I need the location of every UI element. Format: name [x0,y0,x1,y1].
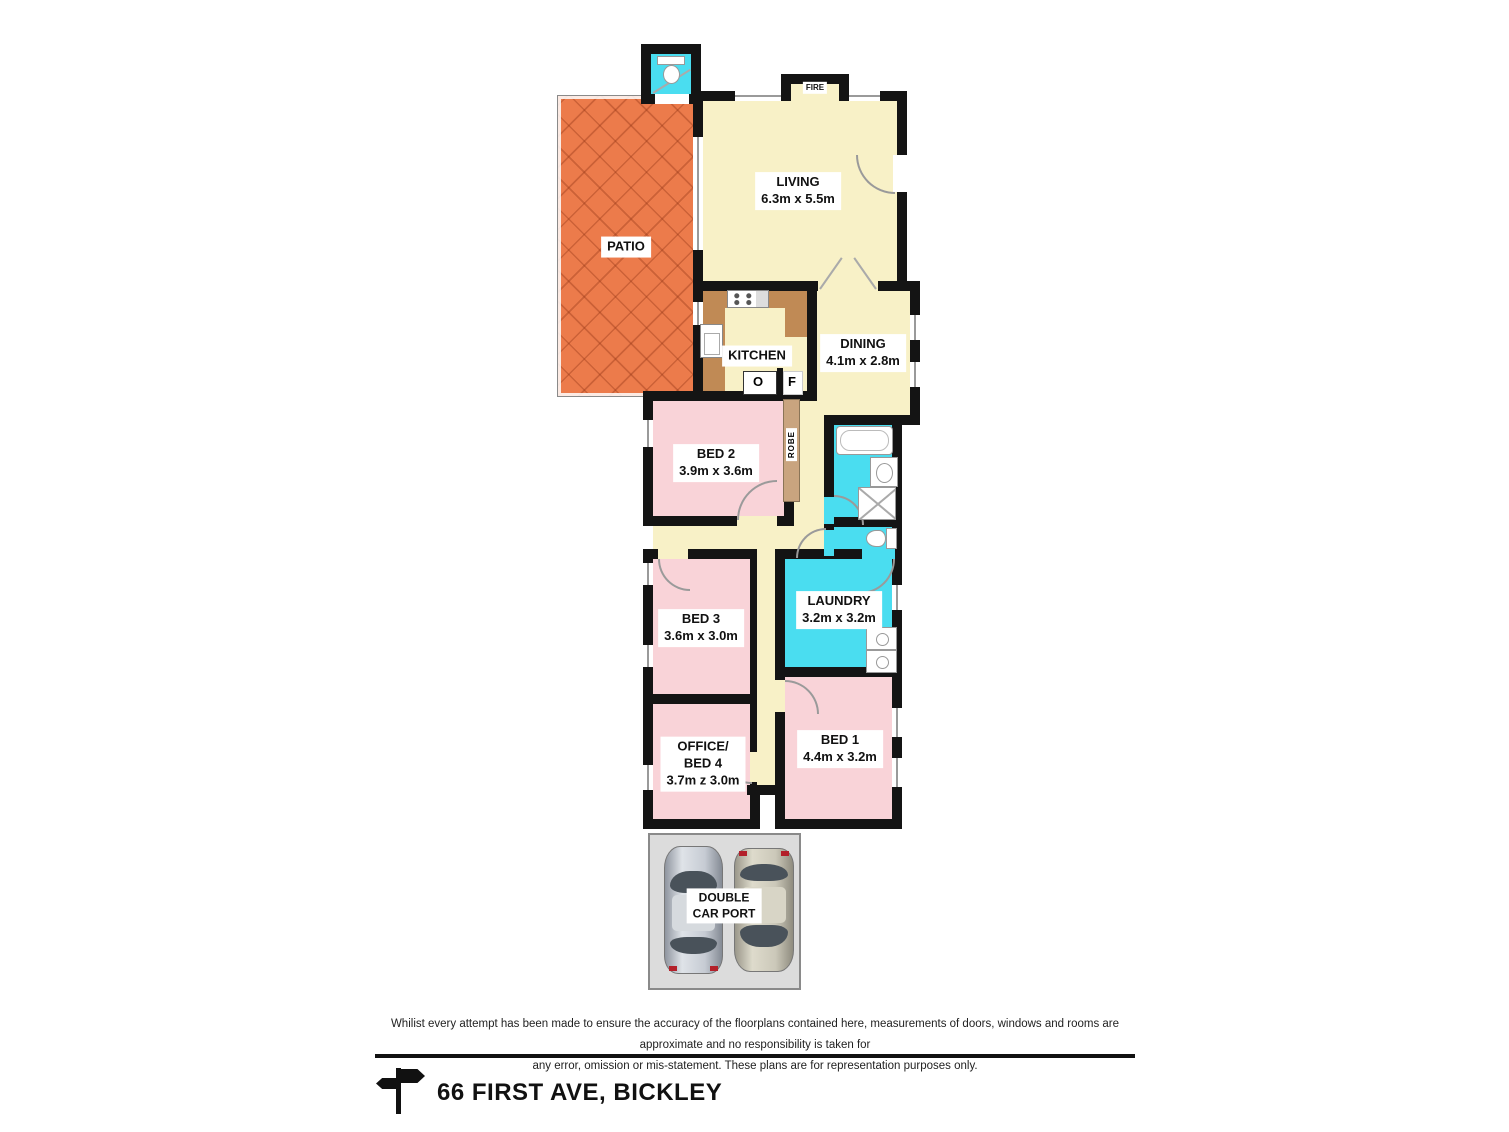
living-door-gap [893,155,907,192]
disclaimer-line2: any error, omission or mis-statement. Th… [375,1056,1135,1077]
laundry-appliance-2-drum [876,656,889,669]
office-label-line2: BED 4 [667,756,740,773]
fire-label-text: FIRE [806,83,824,93]
wc-top-cistern [657,56,685,65]
kitchen-sink-icon [700,324,723,358]
kitchen-wall-stub [777,368,783,395]
stove-icon [727,290,769,308]
car-left-taillight-l [669,966,677,971]
laundry-label-dims: 3.2m x 3.2m [802,610,876,627]
laundry-label: LAUNDRY 3.2m x 3.2m [796,591,882,629]
office-window [643,765,653,790]
car-right-windshield [740,925,788,947]
bed3-label: BED 3 3.6m x 3.0m [658,609,744,647]
laundry-label-name: LAUNDRY [802,593,876,610]
car-right-rear-window [740,864,788,881]
car-right-taillight-l [739,851,747,856]
footer-divider [375,1054,1135,1058]
bed1-label-dims: 4.4m x 3.2m [803,749,877,766]
bed1-label: BED 1 4.4m x 3.2m [797,730,883,768]
car-left-rear-window [670,937,717,954]
carport-label-line2: CAR PORT [693,906,756,922]
office-bed4-label: OFFICE/ BED 4 3.7m z 3.0m [661,737,746,792]
living-label: LIVING 6.3m x 5.5m [755,172,841,210]
wc-toilet-icon [866,530,886,547]
patio-label: PATIO [601,237,651,258]
dining-label-dims: 4.1m x 2.8m [826,353,900,370]
bed2-window [643,420,653,447]
bed3-window-2 [643,645,653,667]
dining-window-1 [910,315,920,340]
dining-label-name: DINING [826,336,900,353]
office-label-line1: OFFICE/ [667,739,740,756]
bed2-label-dims: 3.9m x 3.6m [679,463,753,480]
carport-label-line1: DOUBLE [693,890,756,906]
car-right-taillight-r [781,851,789,856]
signpost-icon [375,1062,425,1116]
bed1-door-gap [775,680,785,712]
bed1-window-2 [892,758,902,787]
laundry-window [892,585,902,610]
laundry-appliance-2 [866,650,897,673]
oven-label: O [753,374,763,389]
bath-sink-icon [870,457,898,487]
kitchen-sink-basin [704,333,720,355]
carport-label: DOUBLE CAR PORT [687,888,762,923]
bed3-label-name: BED 3 [664,611,738,628]
dining-label: DINING 4.1m x 2.8m [820,334,906,372]
bathtub-icon [836,426,893,455]
wc-top-toilet-icon [663,65,680,84]
office-label-dims: 3.7m z 3.0m [667,772,740,789]
double-door-gap [818,281,878,291]
floorplan-page: FIRE PATIO LIVING 6.3m x 5.5m KITCHEN O … [0,0,1509,1132]
signpost-board-left [376,1078,398,1089]
kitchen-label: KITCHEN [722,346,792,367]
bath-door-gap [824,497,834,524]
robe-label: ROBE [786,428,797,461]
hallway-end-wall [747,785,785,795]
patio-label-text: PATIO [607,239,645,256]
living-label-dims: 6.3m x 5.5m [761,191,835,208]
bed1-label-name: BED 1 [803,732,877,749]
signpost-board-right [398,1069,425,1083]
shower-icon [858,487,896,520]
living-window-top-right [849,91,880,101]
hallway-lower [757,526,775,785]
bed3-label-dims: 3.6m x 3.0m [664,628,738,645]
fridge-label: F [788,374,796,389]
bed3-door-gap [658,549,688,559]
disclaimer-line1: Whilist every attempt has been made to e… [375,1014,1135,1056]
bed2-label-name: BED 2 [679,446,753,463]
wc-top-door-gap [655,94,689,104]
disclaimer: Whilist every attempt has been made to e… [375,1014,1135,1077]
laundry-appliance-1-drum [876,633,889,646]
bed2-label: BED 2 3.9m x 3.6m [673,444,759,482]
kitchen-label-text: KITCHEN [728,348,786,365]
laundry-appliance-1 [866,627,897,650]
living-patio-glass-door [693,137,703,250]
kitchen-window [693,302,703,325]
living-label-name: LIVING [761,174,835,191]
living-window-top-left [735,91,781,101]
laundry-door-gap [862,549,895,559]
bed1-window-1 [892,708,902,737]
bed3-window-1 [643,563,653,585]
bath-sink-bowl [876,463,893,483]
bathtub-inner [840,430,889,451]
property-address: 66 FIRST AVE, BICKLEY [437,1079,722,1107]
wc-cistern-icon [886,528,897,549]
fire-label: FIRE [803,82,827,94]
dining-window-2 [910,362,920,387]
car-left-taillight-r [710,966,718,971]
